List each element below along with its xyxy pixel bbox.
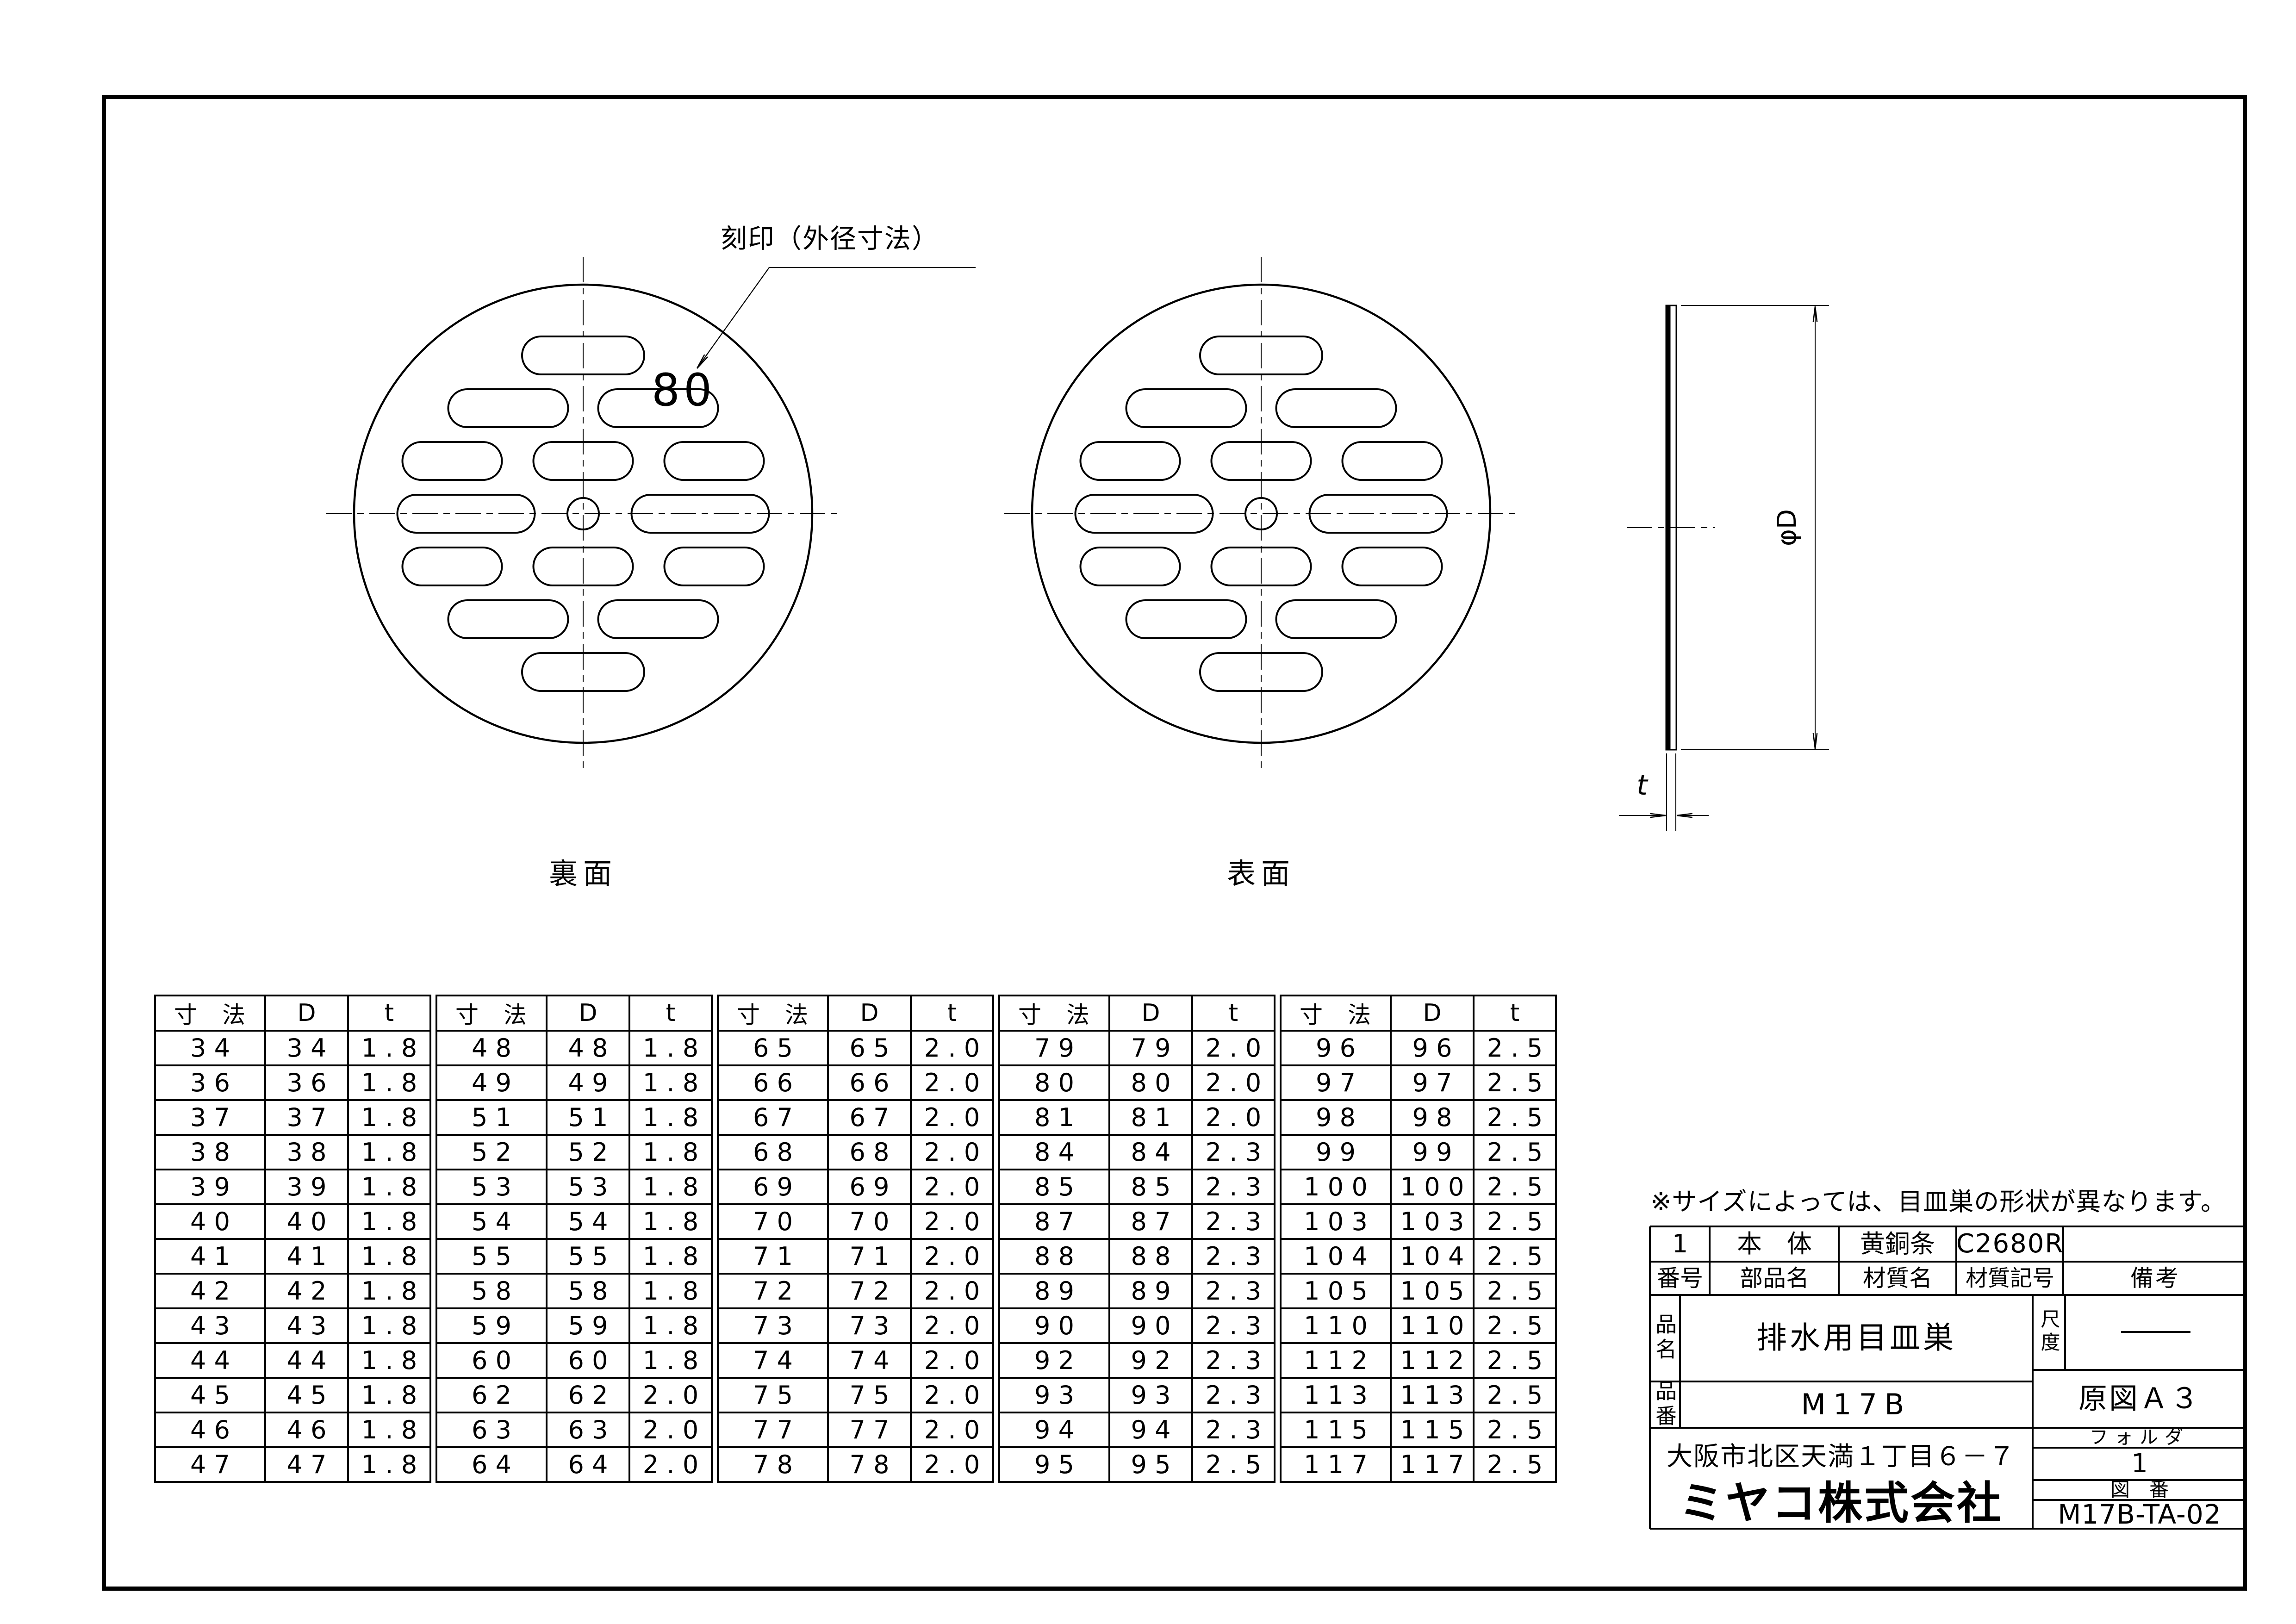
- table-value-cell: 1.8: [629, 1204, 712, 1239]
- back-view-drawing: [326, 257, 840, 771]
- table-value-cell: 2.0: [911, 1170, 993, 1204]
- engraving-callout-label: 刻印（外径寸法）: [721, 226, 939, 252]
- table-value-cell: 63: [436, 1412, 547, 1447]
- table-header-cell: t: [1192, 996, 1275, 1031]
- table-row: 88882.3: [999, 1239, 1275, 1274]
- table-row: 78782.0: [718, 1447, 993, 1482]
- table-value-cell: 46: [155, 1412, 265, 1447]
- titleblock-line: [2245, 1226, 2247, 1529]
- table-value-cell: 103: [1281, 1204, 1391, 1239]
- table-value-cell: 67: [718, 1100, 828, 1135]
- table-value-cell: 78: [828, 1447, 911, 1482]
- table-value-cell: 45: [155, 1378, 265, 1412]
- table-row: 41411.8: [155, 1239, 430, 1274]
- header-number: 番号: [1657, 1267, 1703, 1290]
- table-value-cell: 92: [999, 1343, 1109, 1378]
- table-value-cell: 37: [265, 1100, 348, 1135]
- table-value-cell: 93: [1109, 1378, 1192, 1412]
- table-row: 93932.3: [999, 1378, 1275, 1412]
- table-value-cell: 45: [265, 1378, 348, 1412]
- drain-slot: [1343, 548, 1442, 585]
- table-row: 40401.8: [155, 1204, 430, 1239]
- table-header-cell: D: [1391, 996, 1474, 1031]
- table-value-cell: 65: [828, 1031, 911, 1065]
- product-name-label: 品名: [1654, 1313, 1675, 1363]
- table-value-cell: 1.8: [348, 1204, 430, 1239]
- table-row: 98982.5: [1281, 1100, 1556, 1135]
- table-value-cell: 92: [1109, 1343, 1192, 1378]
- table-value-cell: 52: [547, 1135, 629, 1170]
- table-value-cell: 51: [436, 1100, 547, 1135]
- drain-slot: [448, 600, 568, 638]
- table-value-cell: 58: [547, 1274, 629, 1308]
- table-value-cell: 2.0: [911, 1239, 993, 1274]
- table-value-cell: 2.0: [911, 1100, 993, 1135]
- table-value-cell: 1.8: [629, 1100, 712, 1135]
- table-value-cell: 113: [1391, 1378, 1474, 1412]
- table-header-cell: 寸 法: [999, 996, 1109, 1031]
- table-value-cell: 96: [1391, 1031, 1474, 1065]
- table-value-cell: 60: [547, 1343, 629, 1378]
- table-value-cell: 94: [999, 1412, 1109, 1447]
- table-value-cell: 2.3: [1192, 1204, 1275, 1239]
- table-value-cell: 2.0: [1192, 1100, 1275, 1135]
- table-value-cell: 117: [1281, 1447, 1391, 1482]
- engraving-leader: [697, 268, 976, 368]
- table-row: 49491.8: [436, 1065, 712, 1100]
- table-row: 48481.8: [436, 1031, 712, 1065]
- table-row: 90902.3: [999, 1308, 1275, 1343]
- table-value-cell: 2.5: [1474, 1308, 1556, 1343]
- table-value-cell: 97: [1391, 1065, 1474, 1100]
- table-value-cell: 2.5: [1474, 1031, 1556, 1065]
- table-row: 68682.0: [718, 1135, 993, 1170]
- table-value-cell: 1.8: [348, 1170, 430, 1204]
- table-value-cell: 2.5: [1474, 1412, 1556, 1447]
- table-value-cell: 47: [265, 1447, 348, 1482]
- dimension-table-2: 寸 法Dt48481.849491.851511.852521.853531.8…: [436, 995, 713, 1483]
- drain-slot: [448, 389, 568, 427]
- table-value-cell: 2.0: [911, 1412, 993, 1447]
- table-value-cell: 112: [1391, 1343, 1474, 1378]
- table-value-cell: 58: [436, 1274, 547, 1308]
- table-value-cell: 2.5: [1192, 1447, 1275, 1482]
- table-row: 1151152.5: [1281, 1412, 1556, 1447]
- titleblock-line: [1650, 1294, 2247, 1296]
- titleblock-line: [1650, 1226, 2247, 1227]
- table-value-cell: 64: [436, 1447, 547, 1482]
- table-row: 42421.8: [155, 1274, 430, 1308]
- table-value-cell: 2.5: [1474, 1204, 1556, 1239]
- table-value-cell: 1.8: [348, 1065, 430, 1100]
- table-value-cell: 68: [828, 1135, 911, 1170]
- table-row: 1171172.5: [1281, 1447, 1556, 1482]
- table-value-cell: 1.8: [629, 1274, 712, 1308]
- table-value-cell: 2.3: [1192, 1378, 1275, 1412]
- table-value-cell: 2.3: [1192, 1135, 1275, 1170]
- table-value-cell: 117: [1391, 1447, 1474, 1482]
- table-value-cell: 2.0: [629, 1447, 712, 1482]
- table-value-cell: 66: [718, 1065, 828, 1100]
- table-value-cell: 2.5: [1474, 1378, 1556, 1412]
- drawing-sheet: 刻印（外径寸法） 80 裏面 表面 φD t 寸 法Dt34341.836361…: [0, 0, 2296, 1624]
- table-value-cell: 1.8: [348, 1447, 430, 1482]
- table-value-cell: 1.8: [629, 1135, 712, 1170]
- header-material-code: 材質記号: [1966, 1267, 2054, 1289]
- diameter-dimension-label: φD: [1774, 509, 1800, 546]
- table-value-cell: 84: [999, 1135, 1109, 1170]
- table-value-cell: 49: [547, 1065, 629, 1100]
- table-value-cell: 2.3: [1192, 1239, 1275, 1274]
- table-value-cell: 1.8: [629, 1239, 712, 1274]
- table-value-cell: 85: [1109, 1170, 1192, 1204]
- table-row: 39391.8: [155, 1170, 430, 1204]
- table-value-cell: 104: [1281, 1239, 1391, 1274]
- table-value-cell: 43: [155, 1308, 265, 1343]
- table-row: 77772.0: [718, 1412, 993, 1447]
- table-value-cell: 1.8: [348, 1135, 430, 1170]
- table-value-cell: 46: [265, 1412, 348, 1447]
- table-header-cell: 寸 法: [436, 996, 547, 1031]
- company-name: ミヤコ株式会社: [1679, 1481, 2003, 1525]
- table-row: 43431.8: [155, 1308, 430, 1343]
- engraving-stamp-value: 80: [652, 368, 716, 412]
- company-address: 大阪市北区天満１丁目６－７: [1667, 1444, 2016, 1470]
- header-remarks: 備考: [2130, 1267, 2180, 1290]
- table-value-cell: 87: [999, 1204, 1109, 1239]
- drain-slot: [665, 442, 764, 480]
- table-value-cell: 48: [436, 1031, 547, 1065]
- table-value-cell: 84: [1109, 1135, 1192, 1170]
- table-row: 1001002.5: [1281, 1170, 1556, 1204]
- table-value-cell: 115: [1281, 1412, 1391, 1447]
- table-value-cell: 90: [1109, 1308, 1192, 1343]
- table-value-cell: 113: [1281, 1378, 1391, 1412]
- table-value-cell: 1.8: [629, 1031, 712, 1065]
- table-header-cell: D: [547, 996, 629, 1031]
- table-row: 51511.8: [436, 1100, 712, 1135]
- table-row: 94942.3: [999, 1412, 1275, 1447]
- table-value-cell: 59: [547, 1308, 629, 1343]
- table-value-cell: 2.0: [911, 1135, 993, 1170]
- table-value-cell: 2.0: [1192, 1065, 1275, 1100]
- table-value-cell: 98: [1391, 1100, 1474, 1135]
- table-header-cell: 寸 法: [1281, 996, 1391, 1031]
- table-value-cell: 1.8: [629, 1065, 712, 1100]
- table-value-cell: 74: [828, 1343, 911, 1378]
- product-name: 排水用目皿巣: [1756, 1323, 1956, 1353]
- table-value-cell: 71: [718, 1239, 828, 1274]
- table-row: 37371.8: [155, 1100, 430, 1135]
- table-value-cell: 96: [1281, 1031, 1391, 1065]
- table-value-cell: 38: [265, 1135, 348, 1170]
- table-row: 38381.8: [155, 1135, 430, 1170]
- table-value-cell: 2.3: [1192, 1412, 1275, 1447]
- table-value-cell: 2.5: [1474, 1343, 1556, 1378]
- drawing-no-label: 図 番: [2110, 1480, 2169, 1500]
- table-value-cell: 62: [547, 1378, 629, 1412]
- front-view-drawing: [1004, 257, 1518, 771]
- table-value-cell: 2.0: [911, 1378, 993, 1412]
- table-value-cell: 2.5: [1474, 1100, 1556, 1135]
- titleblock-line: [1679, 1295, 1681, 1428]
- table-value-cell: 105: [1281, 1274, 1391, 1308]
- table-value-cell: 44: [265, 1343, 348, 1378]
- table-value-cell: 105: [1391, 1274, 1474, 1308]
- table-value-cell: 77: [718, 1412, 828, 1447]
- folder-label: フォルダ: [2090, 1428, 2190, 1447]
- table-value-cell: 70: [828, 1204, 911, 1239]
- front-view-label: 表面: [1227, 859, 1295, 888]
- parts-row-material-name: 黄銅条: [1860, 1232, 1935, 1257]
- table-row: 52521.8: [436, 1135, 712, 1170]
- table-row: 1101102.5: [1281, 1308, 1556, 1343]
- folder-value: 1: [2131, 1451, 2148, 1477]
- table-value-cell: 80: [999, 1065, 1109, 1100]
- table-value-cell: 2.0: [911, 1343, 993, 1378]
- table-value-cell: 71: [828, 1239, 911, 1274]
- table-value-cell: 2.0: [1192, 1031, 1275, 1065]
- titleblock-line: [2032, 1295, 2034, 1529]
- original-size: 原図Ａ３: [2078, 1384, 2201, 1413]
- table-value-cell: 39: [155, 1170, 265, 1204]
- table-row: 71712.0: [718, 1239, 993, 1274]
- table-value-cell: 2.0: [911, 1274, 993, 1308]
- drain-slot: [403, 442, 502, 480]
- back-view-label: 裏面: [549, 859, 617, 888]
- table-row: 81812.0: [999, 1100, 1275, 1135]
- table-row: 55551.8: [436, 1239, 712, 1274]
- dimension-table-4: 寸 法Dt79792.080802.081812.084842.385852.3…: [998, 995, 1276, 1483]
- table-value-cell: 38: [155, 1135, 265, 1170]
- table-value-cell: 51: [547, 1100, 629, 1135]
- table-row: 95952.5: [999, 1447, 1275, 1482]
- table-value-cell: 41: [155, 1239, 265, 1274]
- titleblock-line: [2033, 1369, 2247, 1371]
- table-value-cell: 1.8: [348, 1100, 430, 1135]
- table-value-cell: 70: [718, 1204, 828, 1239]
- table-value-cell: 40: [265, 1204, 348, 1239]
- table-value-cell: 1.8: [348, 1378, 430, 1412]
- parts-row-number: 1: [1672, 1232, 1688, 1257]
- table-value-cell: 97: [1281, 1065, 1391, 1100]
- table-value-cell: 88: [999, 1239, 1109, 1274]
- table-row: 1051052.5: [1281, 1274, 1556, 1308]
- table-value-cell: 37: [155, 1100, 265, 1135]
- dimension-table-3: 寸 法Dt65652.066662.067672.068682.069692.0…: [717, 995, 994, 1483]
- table-row: 96962.5: [1281, 1031, 1556, 1065]
- table-value-cell: 2.0: [911, 1204, 993, 1239]
- table-value-cell: 41: [265, 1239, 348, 1274]
- table-value-cell: 2.5: [1474, 1274, 1556, 1308]
- header-material-name: 材質名: [1863, 1267, 1932, 1290]
- table-value-cell: 2.3: [1192, 1343, 1275, 1378]
- table-value-cell: 110: [1391, 1308, 1474, 1343]
- table-row: 99992.5: [1281, 1135, 1556, 1170]
- table-value-cell: 2.5: [1474, 1065, 1556, 1100]
- table-header-cell: t: [1474, 996, 1556, 1031]
- table-row: 75752.0: [718, 1378, 993, 1412]
- table-value-cell: 48: [547, 1031, 629, 1065]
- table-row: 64642.0: [436, 1447, 712, 1482]
- table-value-cell: 103: [1391, 1204, 1474, 1239]
- parts-row-material-code: C2680R: [1956, 1231, 2064, 1257]
- table-value-cell: 94: [1109, 1412, 1192, 1447]
- table-value-cell: 54: [547, 1204, 629, 1239]
- table-value-cell: 1.8: [348, 1412, 430, 1447]
- table-value-cell: 36: [155, 1065, 265, 1100]
- table-value-cell: 95: [999, 1447, 1109, 1482]
- table-row: 66662.0: [718, 1065, 993, 1100]
- header-part-name: 部品名: [1740, 1267, 1809, 1290]
- table-row: 1121122.5: [1281, 1343, 1556, 1378]
- table-header-cell: t: [348, 996, 430, 1031]
- table-value-cell: 44: [155, 1343, 265, 1378]
- parts-row-part-name: 本 体: [1737, 1232, 1812, 1257]
- table-value-cell: 90: [999, 1308, 1109, 1343]
- table-row: 74742.0: [718, 1343, 993, 1378]
- table-value-cell: 63: [547, 1412, 629, 1447]
- table-row: 34341.8: [155, 1031, 430, 1065]
- table-row: 97972.5: [1281, 1065, 1556, 1100]
- table-row: 70702.0: [718, 1204, 993, 1239]
- table-header-cell: t: [911, 996, 993, 1031]
- table-value-cell: 77: [828, 1412, 911, 1447]
- table-row: 1041042.5: [1281, 1239, 1556, 1274]
- drawing-no: M17B-TA-02: [2058, 1501, 2221, 1528]
- table-value-cell: 62: [436, 1378, 547, 1412]
- table-value-cell: 72: [828, 1274, 911, 1308]
- shape-note: ※サイズによっては、目皿巣の形状が異なります。: [1650, 1189, 2226, 1214]
- table-value-cell: 2.0: [911, 1308, 993, 1343]
- drain-slot: [1081, 548, 1180, 585]
- table-row: 89892.3: [999, 1274, 1275, 1308]
- table-value-cell: 1.8: [629, 1343, 712, 1378]
- table-value-cell: 2.3: [1192, 1170, 1275, 1204]
- table-value-cell: 112: [1281, 1343, 1391, 1378]
- table-value-cell: 1.8: [348, 1239, 430, 1274]
- table-value-cell: 2.0: [911, 1065, 993, 1100]
- product-no-label: 品番: [1654, 1380, 1675, 1430]
- table-value-cell: 72: [718, 1274, 828, 1308]
- table-header-cell: D: [1109, 996, 1192, 1031]
- drain-slot: [1276, 600, 1396, 638]
- table-header-cell: t: [629, 996, 712, 1031]
- table-value-cell: 2.5: [1474, 1239, 1556, 1274]
- table-row: 58581.8: [436, 1274, 712, 1308]
- table-value-cell: 95: [1109, 1447, 1192, 1482]
- table-value-cell: 52: [436, 1135, 547, 1170]
- table-row: 67672.0: [718, 1100, 993, 1135]
- table-row: 65652.0: [718, 1031, 993, 1065]
- drain-slot: [665, 548, 764, 585]
- drain-slot: [1126, 600, 1246, 638]
- table-row: 1031032.5: [1281, 1204, 1556, 1239]
- table-row: 36361.8: [155, 1065, 430, 1100]
- table-value-cell: 42: [155, 1274, 265, 1308]
- scale-label: 尺度: [2039, 1309, 2059, 1355]
- table-header-cell: D: [828, 996, 911, 1031]
- drain-slot: [1126, 389, 1246, 427]
- table-value-cell: 99: [1391, 1135, 1474, 1170]
- table-value-cell: 43: [265, 1308, 348, 1343]
- side-view-drawing: [1619, 305, 1829, 831]
- table-row: 69692.0: [718, 1170, 993, 1204]
- table-value-cell: 79: [1109, 1031, 1192, 1065]
- table-header-cell: 寸 法: [155, 996, 265, 1031]
- table-value-cell: 1.8: [348, 1308, 430, 1343]
- table-value-cell: 87: [1109, 1204, 1192, 1239]
- table-value-cell: 2.3: [1192, 1308, 1275, 1343]
- table-value-cell: 2.5: [1474, 1447, 1556, 1482]
- table-value-cell: 75: [828, 1378, 911, 1412]
- table-row: 87872.3: [999, 1204, 1275, 1239]
- table-header-cell: 寸 法: [718, 996, 828, 1031]
- table-value-cell: 88: [1109, 1239, 1192, 1274]
- titleblock-line: [1650, 1381, 2033, 1382]
- table-value-cell: 1.8: [348, 1274, 430, 1308]
- table-value-cell: 73: [718, 1308, 828, 1343]
- table-value-cell: 47: [155, 1447, 265, 1482]
- product-no: M17B: [1801, 1390, 1912, 1419]
- table-value-cell: 36: [265, 1065, 348, 1100]
- drain-slot: [598, 600, 718, 638]
- table-value-cell: 2.3: [1192, 1274, 1275, 1308]
- table-row: 44441.8: [155, 1343, 430, 1378]
- drain-slot: [1276, 389, 1396, 427]
- table-value-cell: 67: [828, 1100, 911, 1135]
- table-row: 72722.0: [718, 1274, 993, 1308]
- table-value-cell: 39: [265, 1170, 348, 1204]
- table-value-cell: 2.0: [629, 1378, 712, 1412]
- table-value-cell: 53: [547, 1170, 629, 1204]
- table-value-cell: 104: [1391, 1239, 1474, 1274]
- table-value-cell: 42: [265, 1274, 348, 1308]
- thickness-dimension-label: t: [1636, 772, 1648, 799]
- titleblock-line: [1650, 1261, 2247, 1263]
- table-value-cell: 53: [436, 1170, 547, 1204]
- table-value-cell: 1.8: [348, 1343, 430, 1378]
- table-value-cell: 115: [1391, 1412, 1474, 1447]
- table-value-cell: 2.0: [911, 1031, 993, 1065]
- drain-slot: [403, 548, 502, 585]
- table-value-cell: 68: [718, 1135, 828, 1170]
- table-value-cell: 55: [547, 1239, 629, 1274]
- table-row: 60601.8: [436, 1343, 712, 1378]
- table-row: 1131132.5: [1281, 1378, 1556, 1412]
- table-value-cell: 60: [436, 1343, 547, 1378]
- table-value-cell: 2.5: [1474, 1170, 1556, 1204]
- table-row: 46461.8: [155, 1412, 430, 1447]
- titleblock-line: [2064, 1295, 2066, 1370]
- scale-value-dash: [2121, 1331, 2190, 1333]
- table-value-cell: 100: [1391, 1170, 1474, 1204]
- table-value-cell: 81: [1109, 1100, 1192, 1135]
- table-value-cell: 69: [718, 1170, 828, 1204]
- table-value-cell: 89: [999, 1274, 1109, 1308]
- table-value-cell: 1.8: [348, 1031, 430, 1065]
- table-row: 92922.3: [999, 1343, 1275, 1378]
- table-row: 85852.3: [999, 1170, 1275, 1204]
- table-value-cell: 40: [155, 1204, 265, 1239]
- table-value-cell: 110: [1281, 1308, 1391, 1343]
- table-row: 54541.8: [436, 1204, 712, 1239]
- table-value-cell: 59: [436, 1308, 547, 1343]
- table-value-cell: 99: [1281, 1135, 1391, 1170]
- table-row: 62622.0: [436, 1378, 712, 1412]
- titleblock-line: [1649, 1226, 1651, 1529]
- table-row: 79792.0: [999, 1031, 1275, 1065]
